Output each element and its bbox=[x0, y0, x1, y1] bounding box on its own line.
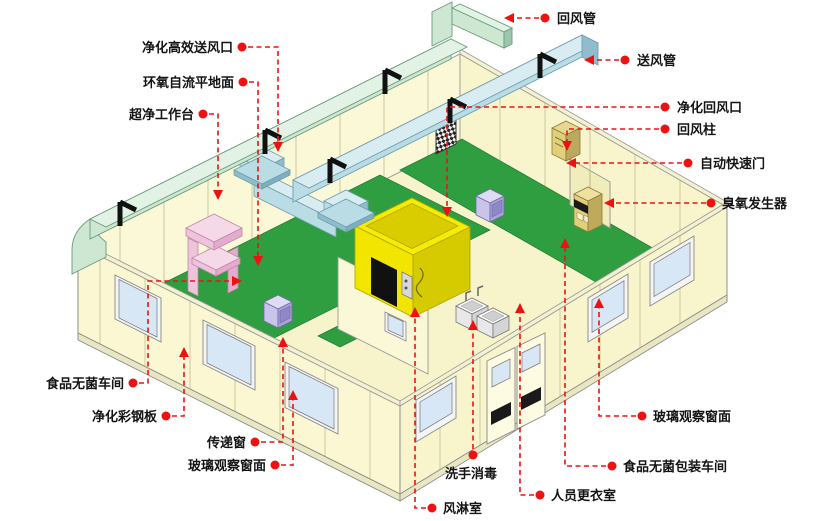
door-left bbox=[487, 348, 515, 445]
cleanroom-diagram: 净化高效送风口 环氧自流平地面 超净工作台 食品无菌车间 净化彩钢板 传递窗 玻… bbox=[0, 0, 821, 521]
label-clean-workbench: 超净工作台 bbox=[129, 107, 194, 123]
arrowhead-left bbox=[504, 13, 514, 23]
transfer-window-box bbox=[264, 295, 292, 328]
label-glass-window-right: 玻璃观察窗面 bbox=[653, 409, 731, 425]
label-purify-return-vent: 净化回风口 bbox=[677, 100, 742, 116]
label-supply-duct: 送风管 bbox=[636, 53, 676, 69]
label-ozone-generator: 臭氧发生器 bbox=[722, 196, 788, 212]
label-hand-wash: 洗手消毒 bbox=[445, 466, 497, 482]
label-glass-window-left: 玻璃观察窗面 bbox=[188, 458, 266, 474]
return-duct-riser bbox=[432, 2, 452, 46]
label-epoxy-floor: 环氧自流平地面 bbox=[143, 75, 234, 91]
air-shower-control-panel bbox=[402, 272, 412, 299]
label-changing-room: 人员更衣室 bbox=[551, 488, 616, 504]
label-auto-quick-door: 自动快速门 bbox=[700, 156, 765, 172]
return-duct-stub-endcap bbox=[504, 28, 512, 48]
ozone-generator-cabinet bbox=[574, 187, 602, 232]
label-transfer-window: 传递窗 bbox=[206, 435, 246, 451]
label-sterile-workshop: 食品无菌车间 bbox=[46, 376, 124, 392]
label-color-steel-panel: 净化彩钢板 bbox=[92, 409, 158, 425]
label-return-duct: 回风管 bbox=[557, 11, 596, 27]
label-air-shower: 风淋室 bbox=[443, 501, 482, 517]
label-hepa-supply-vent: 净化高效送风口 bbox=[142, 40, 233, 56]
diagram-canvas: 净化高效送风口 环氧自流平地面 超净工作台 食品无菌车间 净化彩钢板 传递窗 玻… bbox=[0, 0, 821, 521]
label-return-column: 回风柱 bbox=[677, 122, 716, 138]
door-right bbox=[517, 333, 545, 429]
label-packing-workshop: 食品无菌包装车间 bbox=[623, 459, 727, 475]
equipment-box bbox=[476, 189, 504, 222]
